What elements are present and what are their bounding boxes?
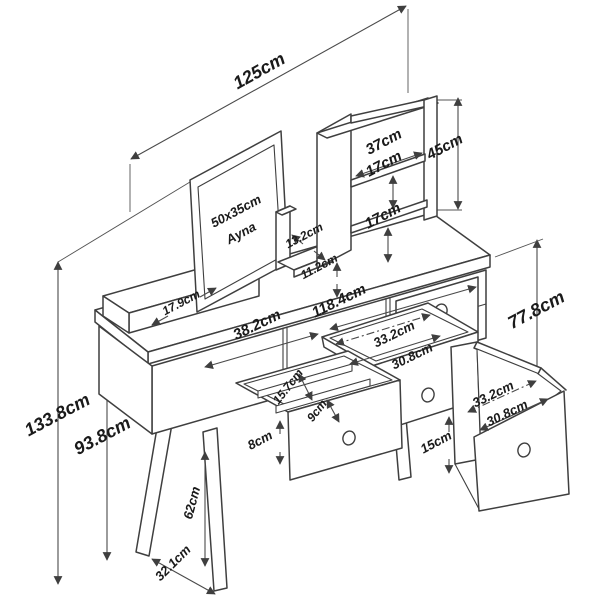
hutch-left-panel	[317, 114, 351, 268]
dim-label-overall-width: 125cm	[230, 48, 289, 93]
dim-label-table-height: 93.8cm	[71, 413, 134, 459]
dim-label-center-front: 8cm	[245, 427, 275, 453]
technical-drawing: 125cm 37cm 45cm 17cm 17cm 50x35cm Ayna 1…	[0, 0, 600, 600]
front-left-leg	[136, 424, 172, 556]
right-drawer	[451, 342, 569, 511]
back-left-leg	[203, 428, 227, 591]
drawing-page: 125cm 37cm 45cm 17cm 17cm 50x35cm Ayna 1…	[0, 0, 600, 600]
dim-label-overall-height: 133.8cm	[21, 389, 93, 440]
dim-label-leg-length: 62cm	[180, 484, 203, 520]
hutch-top-edge	[351, 99, 428, 123]
right-drawer-bottom-edge	[455, 464, 479, 509]
dim-label-right-drawer-height: 15cm	[418, 427, 455, 456]
ext-line	[58, 182, 190, 262]
ext-line	[495, 239, 543, 257]
dim-line-overall-width	[131, 6, 406, 159]
dim-label-right-height: 77.8cm	[505, 287, 568, 333]
